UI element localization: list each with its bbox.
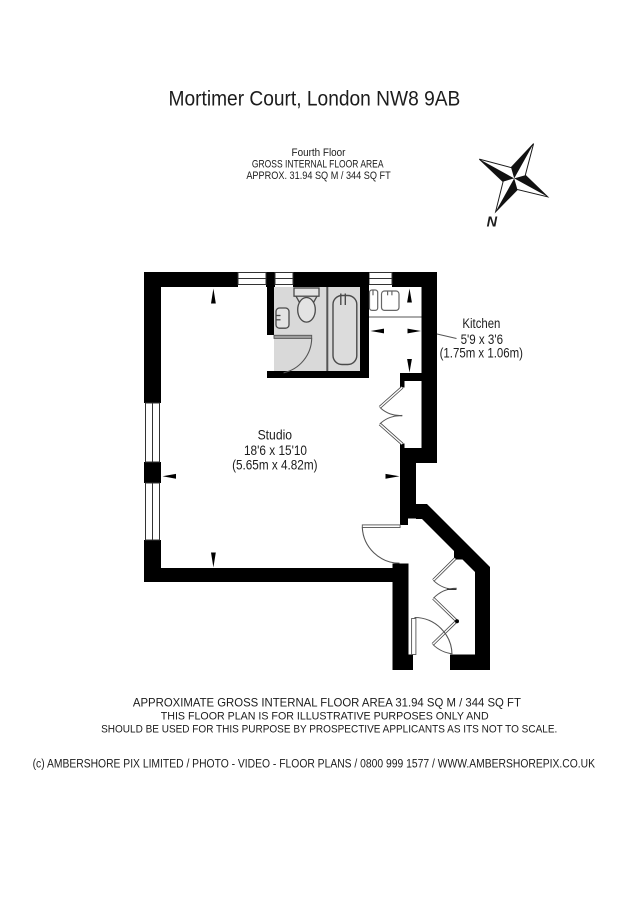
svg-text:N: N	[487, 215, 498, 231]
svg-text:(1.75m x 1.06m): (1.75m x 1.06m)	[440, 344, 523, 360]
svg-text:Mortimer Court, London NW8 9AB: Mortimer Court, London NW8 9AB	[169, 88, 461, 111]
svg-text:(5.65m x 4.82m): (5.65m x 4.82m)	[232, 457, 317, 473]
svg-text:SHOULD BE USED FOR THIS PURPOS: SHOULD BE USED FOR THIS PURPOSE BY PROSP…	[101, 723, 557, 736]
svg-text:APPROXIMATE GROSS INTERNAL FLO: APPROXIMATE GROSS INTERNAL FLOOR AREA 31…	[133, 698, 521, 710]
svg-text:Kitchen: Kitchen	[462, 315, 500, 331]
svg-text:APPROX. 31.94 SQ M / 344 SQ FT: APPROX. 31.94 SQ M / 344 SQ FT	[246, 170, 390, 182]
svg-text:(c) AMBERSHORE PIX LIMITED / P: (c) AMBERSHORE PIX LIMITED / PHOTO - VID…	[33, 758, 596, 771]
svg-text:Studio: Studio	[258, 427, 292, 443]
svg-text:GROSS INTERNAL FLOOR AREA: GROSS INTERNAL FLOOR AREA	[252, 158, 384, 170]
svg-text:THIS FLOOR PLAN IS FOR ILLUSTR: THIS FLOOR PLAN IS FOR ILLUSTRATIVE PURP…	[161, 710, 489, 722]
